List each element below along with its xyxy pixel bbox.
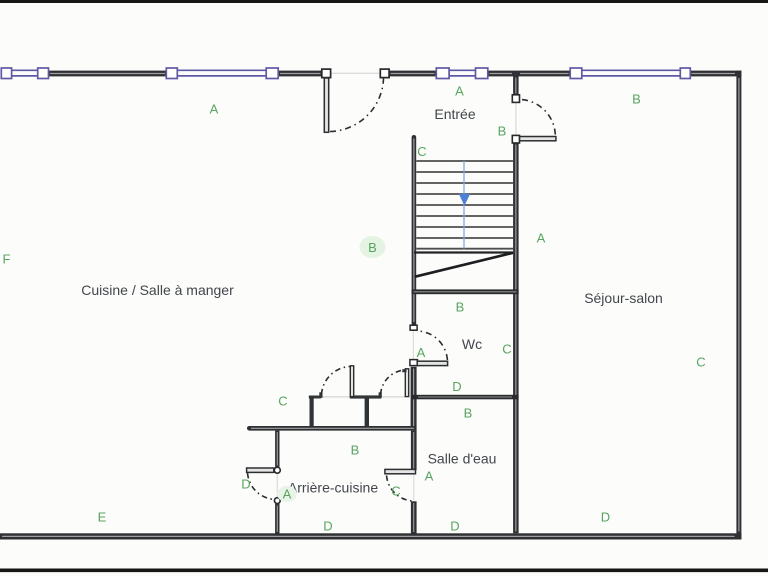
svg-text:D: D xyxy=(241,477,250,492)
svg-text:Entrée: Entrée xyxy=(434,106,475,122)
svg-text:D: D xyxy=(452,379,461,394)
svg-text:Cuisine / Salle à manger: Cuisine / Salle à manger xyxy=(81,282,234,298)
svg-text:C: C xyxy=(278,394,287,409)
svg-text:C: C xyxy=(417,144,426,159)
svg-text:F: F xyxy=(3,252,11,267)
svg-text:Wc: Wc xyxy=(462,336,482,352)
svg-text:D: D xyxy=(323,519,332,534)
svg-text:A: A xyxy=(425,469,434,484)
svg-text:B: B xyxy=(351,443,360,458)
svg-text:B: B xyxy=(456,300,465,315)
svg-text:C: C xyxy=(502,342,511,357)
svg-text:B: B xyxy=(498,124,507,139)
svg-text:A: A xyxy=(210,102,219,117)
svg-text:Arrière-cuisine: Arrière-cuisine xyxy=(288,480,378,496)
svg-text:A: A xyxy=(417,345,426,360)
svg-text:B: B xyxy=(632,92,641,107)
svg-text:D: D xyxy=(601,510,610,525)
svg-text:B: B xyxy=(464,406,473,421)
svg-text:C: C xyxy=(391,484,400,499)
svg-text:E: E xyxy=(98,510,107,525)
svg-text:Salle d'eau: Salle d'eau xyxy=(428,451,497,467)
svg-text:Séjour-salon: Séjour-salon xyxy=(584,290,663,306)
svg-text:B: B xyxy=(368,240,377,255)
svg-text:D: D xyxy=(450,519,459,534)
svg-text:A: A xyxy=(283,487,292,502)
svg-text:A: A xyxy=(537,231,546,246)
svg-text:C: C xyxy=(696,355,705,370)
svg-text:A: A xyxy=(455,84,464,99)
